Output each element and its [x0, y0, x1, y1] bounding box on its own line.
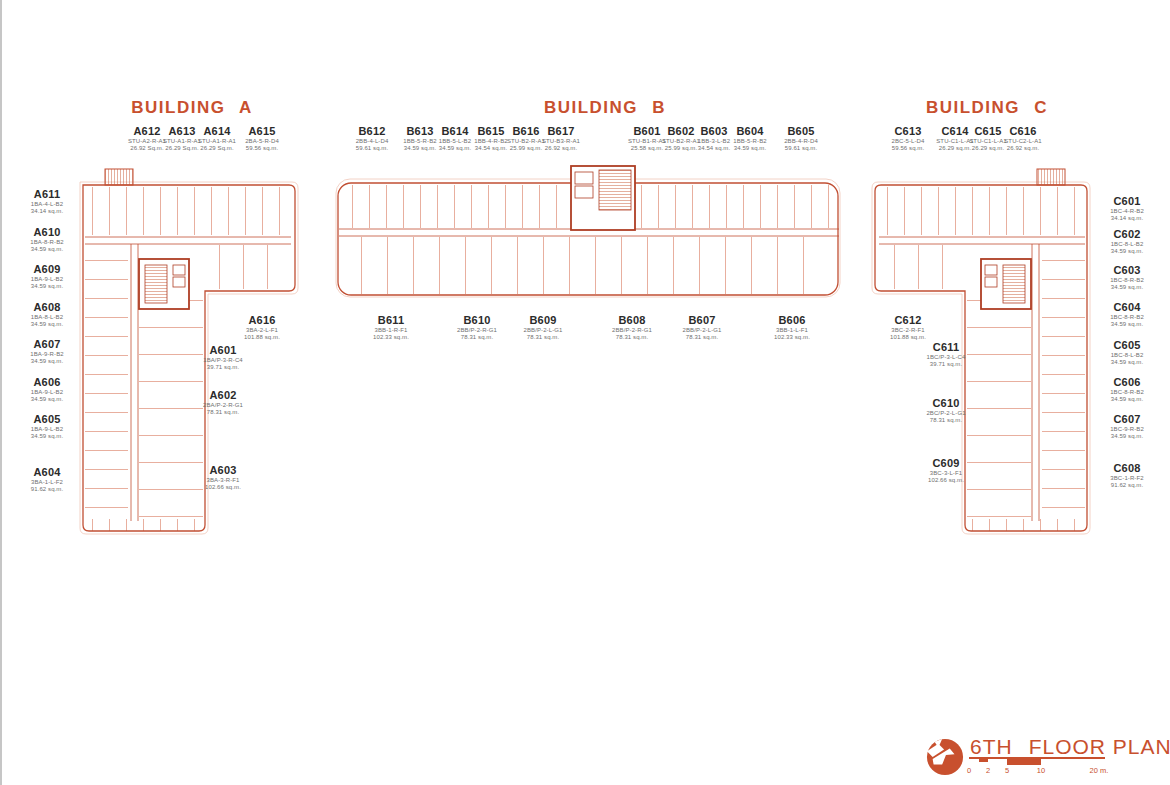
unit-id: C605: [1082, 339, 1170, 352]
unit-label-c604: C6041BC-8-R-B234.59 sq.m.: [1082, 301, 1170, 329]
unit-id: A616: [217, 314, 307, 327]
room-band: [879, 187, 1085, 235]
unit-id: A605: [2, 413, 92, 426]
unit-id: B611: [346, 314, 436, 327]
unit-type: 2BB/P-2-L-G1: [657, 327, 747, 335]
top-stair: [1037, 169, 1065, 185]
unit-area: 101.88 sq.m.: [217, 334, 307, 342]
unit-type: 1BC-9-R-B2: [1082, 426, 1170, 434]
unit-area: 34.59 sq.m.: [2, 396, 92, 404]
unit-area: 34.59 sq.m.: [2, 246, 92, 254]
unit-label-a616: A6163BA-2-L-F1101.88 sq.m.: [217, 314, 307, 342]
top-stair: [105, 169, 133, 185]
unit-label-b607: B6072BB/P-2-L-G178.31 sq.m.: [657, 314, 747, 342]
room-band: [209, 245, 291, 289]
unit-id: C616: [978, 125, 1068, 138]
unit-type: 1BA-9-L-B2: [2, 276, 92, 284]
unit-type: 3BA-2-L-F1: [217, 327, 307, 335]
unit-area: 26.92 sq.m.: [516, 145, 606, 153]
unit-label-b605: B6052BB-4-R-D459.61 sq.m.: [756, 125, 846, 153]
unit-area: 102.33 sq.m.: [346, 334, 436, 342]
unit-area: 26.92 sq.m.: [978, 145, 1068, 153]
unit-area: 91.62 sq.m.: [1082, 482, 1170, 490]
unit-label-a602: A6022BA/P-2-R-G178.31 sq.m.: [178, 389, 268, 417]
room-band: [347, 237, 829, 294]
unit-label-a607: A6071BA-9-R-B234.59 sq.m.: [2, 338, 92, 366]
unit-label-a601: A6011BA/P-3-R-C439.71 sq.m.: [178, 344, 268, 372]
floor-plan-label: FLOOR PLAN: [1029, 735, 1170, 758]
scale-bar-segment: [1007, 759, 1041, 765]
unit-label-c611: C6111BC/P-3-L-C439.71 sq.m.: [901, 341, 991, 369]
unit-label-c602: C6021BC-8-L-B234.59 sq.m.: [1082, 228, 1170, 256]
unit-id: A604: [2, 466, 92, 479]
building-b-floorplan: [335, 158, 845, 308]
unit-area: 59.56 sq.m.: [217, 145, 307, 153]
unit-type: 1BA-8-R-B2: [2, 239, 92, 247]
brand-logo-icon: [926, 738, 964, 776]
scale-tick: 10: [1037, 766, 1045, 775]
unit-id: A610: [2, 226, 92, 239]
unit-area: 102.33 sq.m.: [747, 334, 837, 342]
unit-type: 3BC-3-L-F1: [901, 470, 991, 478]
unit-label-a605: A6051BA-9-L-B234.59 sq.m.: [2, 413, 92, 441]
unit-type: 2BC/P-2-L-G1: [901, 410, 991, 418]
unit-label-b617: B617STU-B3-R-A126.92 sq.m.: [516, 125, 606, 153]
unit-label-b609: B6092BB/P-2-L-G178.31 sq.m.: [498, 314, 588, 342]
room-band: [85, 187, 291, 235]
unit-area: 34.59 sq.m.: [1082, 359, 1170, 367]
unit-id: C604: [1082, 301, 1170, 314]
unit-id: C610: [901, 397, 991, 410]
scale-bar: 0 2 5 10 20 m.: [969, 757, 1107, 777]
unit-id: C608: [1082, 462, 1170, 475]
unit-area: 34.59 sq.m.: [1082, 284, 1170, 292]
unit-id: C609: [901, 457, 991, 470]
floor-plan-page: BUILDING A A612STU-A2-R-A126.92 Sq.m. A6…: [0, 0, 1170, 785]
unit-id: C603: [1082, 264, 1170, 277]
unit-type: 2BA/P-2-R-G1: [178, 402, 268, 410]
building-b-header: BUILDING B: [544, 98, 666, 118]
scale-tick: 20 m.: [1090, 766, 1109, 775]
unit-label-a611: A6111BA-4-L-B234.14 sq.m.: [2, 188, 92, 216]
unit-label-c605: C6051BC-8-L-B234.59 sq.m.: [1082, 339, 1170, 367]
unit-id: A602: [178, 389, 268, 402]
unit-type: 2BA-5-R-D4: [217, 138, 307, 146]
balcony-row: [85, 519, 203, 531]
unit-id: A608: [2, 301, 92, 314]
unit-area: 102.66 sq.m.: [901, 477, 991, 485]
unit-area: 34.59 sq.m.: [1082, 396, 1170, 404]
unit-id: A601: [178, 344, 268, 357]
unit-id: B617: [516, 125, 606, 138]
unit-area: 59.61 sq.m.: [756, 145, 846, 153]
unit-id: C602: [1082, 228, 1170, 241]
unit-id: A615: [217, 125, 307, 138]
unit-area: 39.71 sq.m.: [901, 361, 991, 369]
unit-type: 1BA-9-L-B2: [2, 389, 92, 397]
unit-label-a610: A6101BA-8-R-B234.59 sq.m.: [2, 226, 92, 254]
unit-id: A603: [178, 464, 268, 477]
unit-type: 1BA-4-L-B2: [2, 201, 92, 209]
unit-type: STU-B3-R-A1: [516, 138, 606, 146]
room-band: [879, 245, 961, 289]
unit-type: 1BC-8-L-B2: [1082, 352, 1170, 360]
room-band: [1042, 250, 1085, 519]
unit-type: 1BA-9-R-B2: [2, 351, 92, 359]
unit-id: A609: [2, 263, 92, 276]
unit-label-a609: A6091BA-9-L-B234.59 sq.m.: [2, 263, 92, 291]
unit-area: 78.31 sq.m.: [657, 334, 747, 342]
unit-id: C606: [1082, 376, 1170, 389]
floor-number: 6TH: [970, 735, 1013, 758]
unit-label-a615: A6152BA-5-R-D459.56 sq.m.: [217, 125, 307, 153]
unit-id: A611: [2, 188, 92, 201]
unit-area: 34.59 sq.m.: [2, 358, 92, 366]
unit-area: 78.31 sq.m.: [498, 334, 588, 342]
unit-label-c606: C6061BC-8-R-B234.59 sq.m.: [1082, 376, 1170, 404]
unit-area: 34.59 sq.m.: [1082, 321, 1170, 329]
unit-label-c608: C6083BC-1-R-F291.62 sq.m.: [1082, 462, 1170, 490]
stair-core: [139, 259, 189, 309]
unit-type: 3BA-3-R-F1: [178, 477, 268, 485]
unit-type: 2BB/P-2-L-G1: [498, 327, 588, 335]
building-a-header: BUILDING A: [131, 98, 253, 118]
unit-type: 1BA/P-3-R-C4: [178, 357, 268, 365]
unit-type: 1BA-8-L-B2: [2, 314, 92, 322]
unit-type: 1BC-8-R-B2: [1082, 277, 1170, 285]
unit-type: 3BA-1-L-F2: [2, 479, 92, 487]
unit-label-c603: C6031BC-8-R-B234.59 sq.m.: [1082, 264, 1170, 292]
unit-label-c609: C6093BC-3-L-F1102.66 sq.m.: [901, 457, 991, 485]
unit-id: B606: [747, 314, 837, 327]
unit-label-c610: C6102BC/P-2-L-G178.31 sq.m.: [901, 397, 991, 425]
unit-type: 1BA-9-L-B2: [2, 426, 92, 434]
unit-type: 1BC-8-R-B2: [1082, 314, 1170, 322]
unit-area: 34.14 sq.m.: [2, 208, 92, 216]
scale-bar-segment: [979, 759, 988, 762]
stair-core: [571, 166, 635, 230]
unit-type: 1BC-4-R-B2: [1082, 208, 1170, 216]
unit-label-c601: C6011BC-4-R-B234.14 sq.m.: [1082, 195, 1170, 223]
unit-id: C601: [1082, 195, 1170, 208]
unit-type: 3BC-2-R-F1: [863, 327, 953, 335]
scale-tick: 2: [986, 766, 990, 775]
unit-label-c607: C6071BC-9-R-B234.59 sq.m.: [1082, 413, 1170, 441]
unit-area: 34.59 sq.m.: [2, 321, 92, 329]
unit-label-a604: A6043BA-1-L-F291.62 sq.m.: [2, 466, 92, 494]
unit-id: C607: [1082, 413, 1170, 426]
unit-id: C612: [863, 314, 953, 327]
unit-type: 1BC-8-R-B2: [1082, 389, 1170, 397]
unit-area: 91.62 sq.m.: [2, 486, 92, 494]
unit-type: STU-C2-L-A1: [978, 138, 1068, 146]
unit-area: 78.31 sq.m.: [178, 409, 268, 417]
unit-label-c616: C616STU-C2-L-A126.92 sq.m.: [978, 125, 1068, 153]
unit-label-c612: C6123BC-2-R-F1101.88 sq.m.: [863, 314, 953, 342]
stair-core: [981, 259, 1031, 309]
unit-type: 3BC-1-R-F2: [1082, 475, 1170, 483]
unit-area: 34.59 sq.m.: [2, 433, 92, 441]
unit-area: 34.59 sq.m.: [1082, 248, 1170, 256]
balcony-row: [967, 519, 1085, 531]
building-c-header: BUILDING C: [926, 98, 1048, 118]
unit-id: A607: [2, 338, 92, 351]
unit-area: 78.31 sq.m.: [901, 417, 991, 425]
unit-label-b606: B6063BB-1-L-F1102.33 sq.m.: [747, 314, 837, 342]
unit-area: 39.71 sq.m.: [178, 364, 268, 372]
unit-id: B605: [756, 125, 846, 138]
unit-area: 34.14 sq.m.: [1082, 215, 1170, 223]
scale-tick: 0: [967, 766, 971, 775]
unit-id: A606: [2, 376, 92, 389]
unit-type: 3BB-1-R-F1: [346, 327, 436, 335]
unit-area: 34.59 sq.m.: [2, 283, 92, 291]
unit-id: C611: [901, 341, 991, 354]
unit-id: B607: [657, 314, 747, 327]
unit-area: 102.66 sq.m.: [178, 484, 268, 492]
floor-plan-title: 6THFLOOR PLAN: [970, 735, 1170, 759]
unit-label-a606: A6061BA-9-L-B234.59 sq.m.: [2, 376, 92, 404]
unit-type: 3BB-1-L-F1: [747, 327, 837, 335]
unit-type: 2BB-4-R-D4: [756, 138, 846, 146]
unit-id: B609: [498, 314, 588, 327]
unit-label-a603: A6033BA-3-R-F1102.66 sq.m.: [178, 464, 268, 492]
unit-label-a608: A6081BA-8-L-B234.59 sq.m.: [2, 301, 92, 329]
scale-tick: 5: [1005, 766, 1009, 775]
unit-area: 34.59 sq.m.: [1082, 433, 1170, 441]
unit-type: 1BC/P-3-L-C4: [901, 354, 991, 362]
unit-type: 1BC-8-L-B2: [1082, 241, 1170, 249]
unit-label-b611: B6113BB-1-R-F1102.33 sq.m.: [346, 314, 436, 342]
